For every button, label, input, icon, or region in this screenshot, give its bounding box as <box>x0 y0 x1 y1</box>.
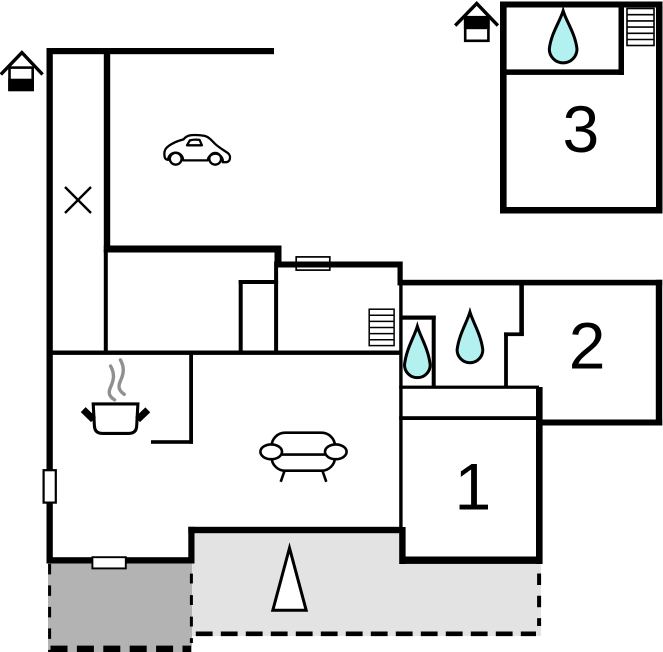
svg-text:1: 1 <box>454 449 491 523</box>
svg-text:3: 3 <box>563 92 600 166</box>
svg-text:2: 2 <box>569 309 606 383</box>
